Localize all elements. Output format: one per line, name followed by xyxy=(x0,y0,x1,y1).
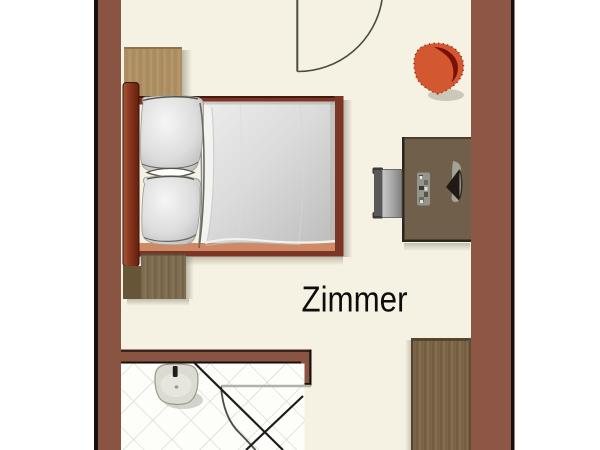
svg-text:Zimmer: Zimmer xyxy=(302,279,408,320)
